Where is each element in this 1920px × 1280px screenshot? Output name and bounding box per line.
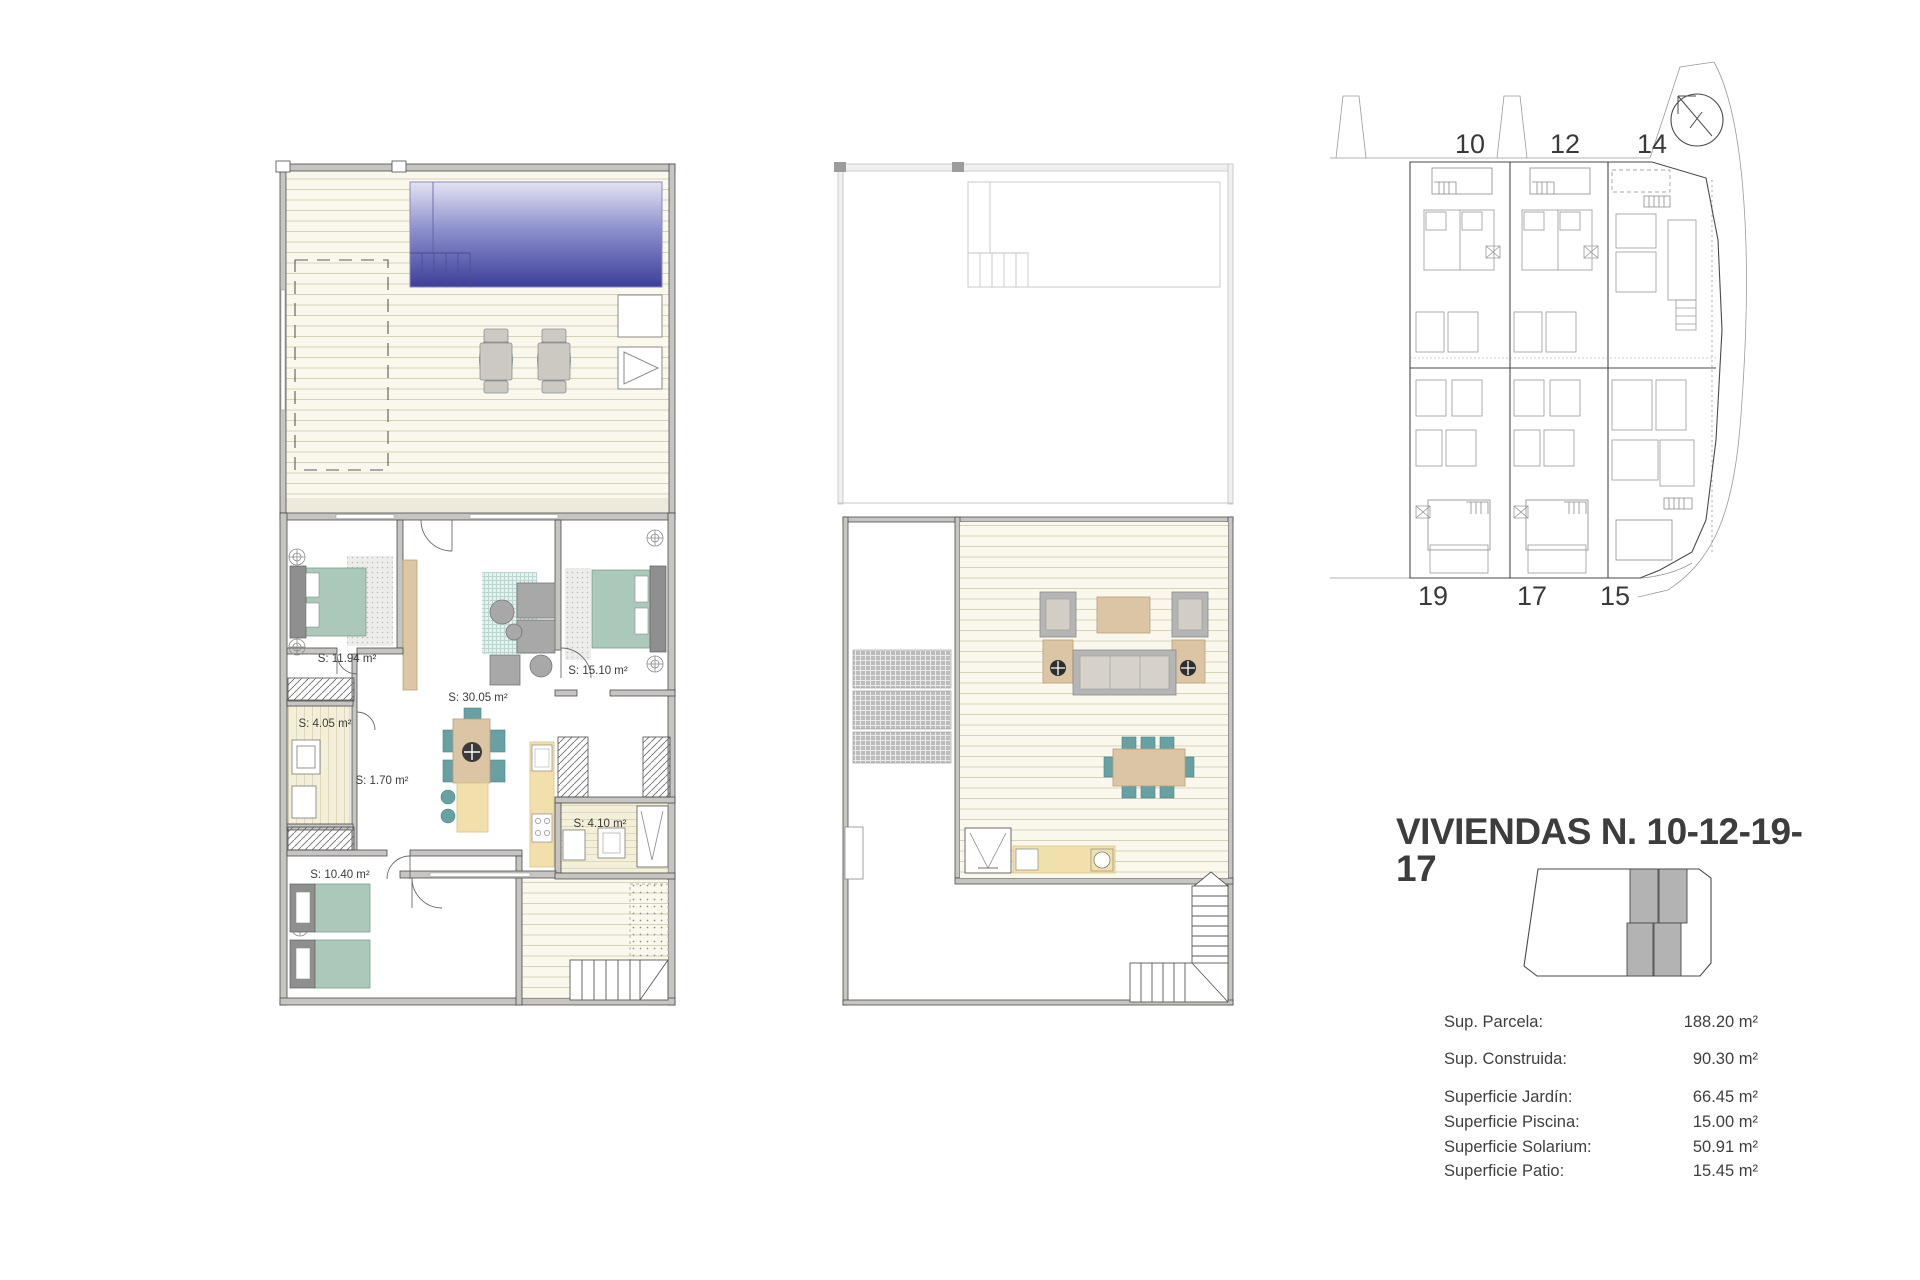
cooktop-icon <box>532 814 552 842</box>
stairs-icon <box>570 960 668 1000</box>
sun-lounger-icon <box>479 329 513 393</box>
lower-floor-ghost <box>834 162 1233 504</box>
area-label: Superficie Piscina: <box>1444 1113 1580 1133</box>
room-label-bedroom-1: S: 11.94 m² <box>318 653 377 665</box>
area-label: Sup. Construida: <box>1444 1050 1567 1070</box>
site-unit-number-12: 12 <box>1550 129 1580 159</box>
area-row: Superficie Piscina: 15.00 m² <box>1444 1113 1758 1133</box>
area-value: 15.00 m² <box>1693 1113 1758 1133</box>
surface-area-table: Sup. Parcela: 188.20 m² Sup. Construida:… <box>1444 1013 1758 1182</box>
area-value: 15.45 m² <box>1693 1162 1758 1182</box>
site-unit-14 <box>1612 170 1696 330</box>
site-unit-15 <box>1612 380 1694 560</box>
site-unit-10 <box>1416 168 1500 352</box>
north-arrow-icon <box>1671 94 1723 146</box>
pergola-grid <box>853 650 951 763</box>
area-row: Sup. Construida: 90.30 m² <box>1444 1050 1758 1070</box>
garden-storage-box <box>618 295 662 337</box>
site-unit-number-14: 14 <box>1637 129 1667 159</box>
area-label: Superficie Jardín: <box>1444 1088 1572 1108</box>
living-area <box>482 572 555 685</box>
area-row: Superficie Solarium: 50.91 m² <box>1444 1138 1758 1158</box>
round-table-icon <box>506 624 522 640</box>
kitchen-counter <box>530 742 554 867</box>
outdoor-kitchen-counter <box>1013 846 1115 873</box>
armchair-icon <box>1040 592 1076 637</box>
planter-box <box>845 827 863 879</box>
outdoor-shower-icon <box>618 347 662 389</box>
solarium-deck <box>960 522 1228 878</box>
site-unit-number-19: 19 <box>1418 581 1448 611</box>
stairs-icon <box>1130 872 1228 1002</box>
pouf-icon <box>530 655 552 677</box>
coffee-table-icon <box>1097 597 1150 633</box>
area-value: 66.45 m² <box>1693 1088 1758 1108</box>
patio-gravel-area <box>630 884 668 960</box>
kitchen-island <box>441 783 488 832</box>
room-label-living: S: 30.05 m² <box>448 692 508 704</box>
armchair-icon <box>1172 592 1208 637</box>
area-row: Superficie Jardín: 66.45 m² <box>1444 1088 1758 1108</box>
ground-floor-plan: S: 11.94 m² S: 4.05 m² S: 1.70 m² S: 10.… <box>276 161 675 1005</box>
site-unit-17 <box>1514 380 1588 573</box>
page-title: VIVIENDAS N. 10-12-19-17 <box>1396 813 1826 887</box>
area-value: 50.91 m² <box>1693 1138 1758 1158</box>
area-row: Superficie Patio: 15.45 m² <box>1444 1162 1758 1182</box>
area-value: 90.30 m² <box>1693 1050 1758 1070</box>
site-unit-19 <box>1416 380 1490 573</box>
sun-lounger-icon <box>537 329 571 393</box>
double-bed-icon <box>290 556 393 646</box>
side-table-icon <box>1043 640 1073 683</box>
area-value: 188.20 m² <box>1684 1013 1758 1033</box>
site-unit-number-10: 10 <box>1455 129 1485 159</box>
area-label: Sup. Parcela: <box>1444 1013 1543 1033</box>
closet-strip <box>403 560 417 690</box>
round-table-icon <box>490 600 514 624</box>
area-row: Sup. Parcela: 188.20 m² <box>1444 1013 1758 1033</box>
room-label-hall: S: 1.70 m² <box>355 775 408 787</box>
area-label: Superficie Patio: <box>1444 1162 1564 1182</box>
double-bed-icon <box>565 566 666 660</box>
dining-table-icon <box>443 708 505 783</box>
room-label-bathroom-2: S: 4.10 m² <box>573 818 626 830</box>
area-label: Superficie Solarium: <box>1444 1138 1592 1158</box>
site-plan: 10 12 14 19 17 15 <box>1330 62 1746 611</box>
site-unit-number-17: 17 <box>1517 581 1547 611</box>
building-outline <box>1410 162 1722 578</box>
single-bed-icon <box>290 940 370 988</box>
shower-icon <box>965 828 1011 873</box>
room-label-bedroom-3: S: 10.40 m² <box>310 869 370 881</box>
side-table-icon <box>1172 640 1205 683</box>
single-bed-icon <box>290 884 370 932</box>
pool <box>410 182 662 287</box>
room-label-bathroom-1: S: 4.05 m² <box>298 718 351 730</box>
sink-icon <box>1094 852 1110 868</box>
site-unit-12 <box>1514 168 1598 352</box>
sofa-icon <box>1073 650 1176 695</box>
room-label-bedroom-2: S: 15.10 m² <box>568 665 628 677</box>
solarium-plan <box>834 162 1233 1005</box>
site-unit-number-15: 15 <box>1600 581 1630 611</box>
